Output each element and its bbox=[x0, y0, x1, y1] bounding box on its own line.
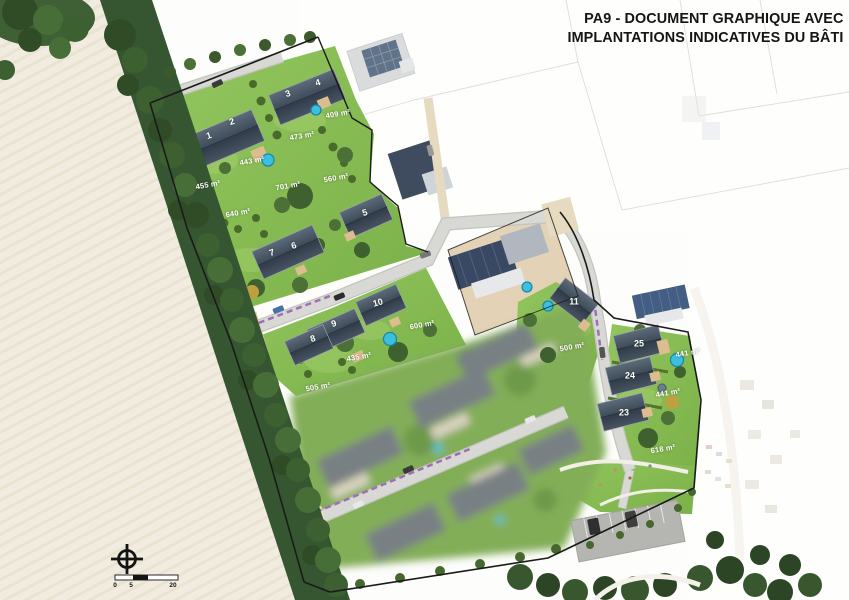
lot-number: 11 bbox=[569, 298, 579, 307]
scale-tick-0: 0 bbox=[113, 583, 117, 590]
scale-tick-20: 20 bbox=[169, 583, 176, 590]
document-title-line2: IMPLANTATIONS INDICATIVES DU BÂTI bbox=[567, 28, 843, 47]
lot-number: 23 bbox=[619, 409, 629, 418]
site-plan-page: PA9 - DOCUMENT GRAPHIQUE AVEC IMPLANTATI… bbox=[0, 0, 849, 600]
scale-tick-5: 5 bbox=[129, 583, 133, 590]
document-title: PA9 - DOCUMENT GRAPHIQUE AVEC IMPLANTATI… bbox=[567, 9, 843, 47]
swimming-pool bbox=[522, 282, 532, 292]
site-plan-drawing bbox=[0, 0, 849, 600]
lot-number: 25 bbox=[634, 340, 644, 349]
document-title-line1: PA9 - DOCUMENT GRAPHIQUE AVEC bbox=[567, 9, 843, 28]
lot-number: 24 bbox=[625, 372, 635, 381]
scale-bar bbox=[115, 575, 178, 580]
